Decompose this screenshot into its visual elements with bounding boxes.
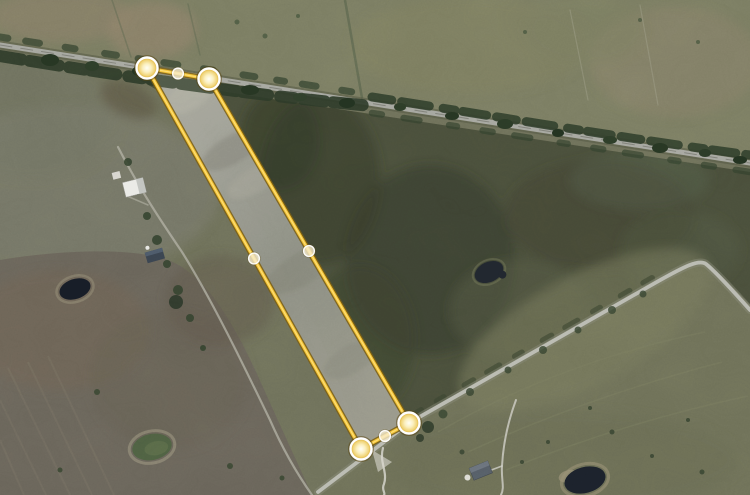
vertex-handle[interactable] (351, 439, 372, 460)
vertex-handle[interactable] (399, 413, 420, 434)
satellite-map-canvas[interactable] (0, 0, 750, 495)
vertex-handle[interactable] (137, 58, 158, 79)
satellite-map-view[interactable] (0, 0, 750, 495)
vertex-handle[interactable] (199, 69, 220, 90)
midpoint-handle[interactable] (380, 431, 391, 442)
midpoint-handle[interactable] (304, 246, 315, 257)
midpoint-handle[interactable] (173, 68, 184, 79)
midpoint-handle[interactable] (249, 253, 260, 264)
